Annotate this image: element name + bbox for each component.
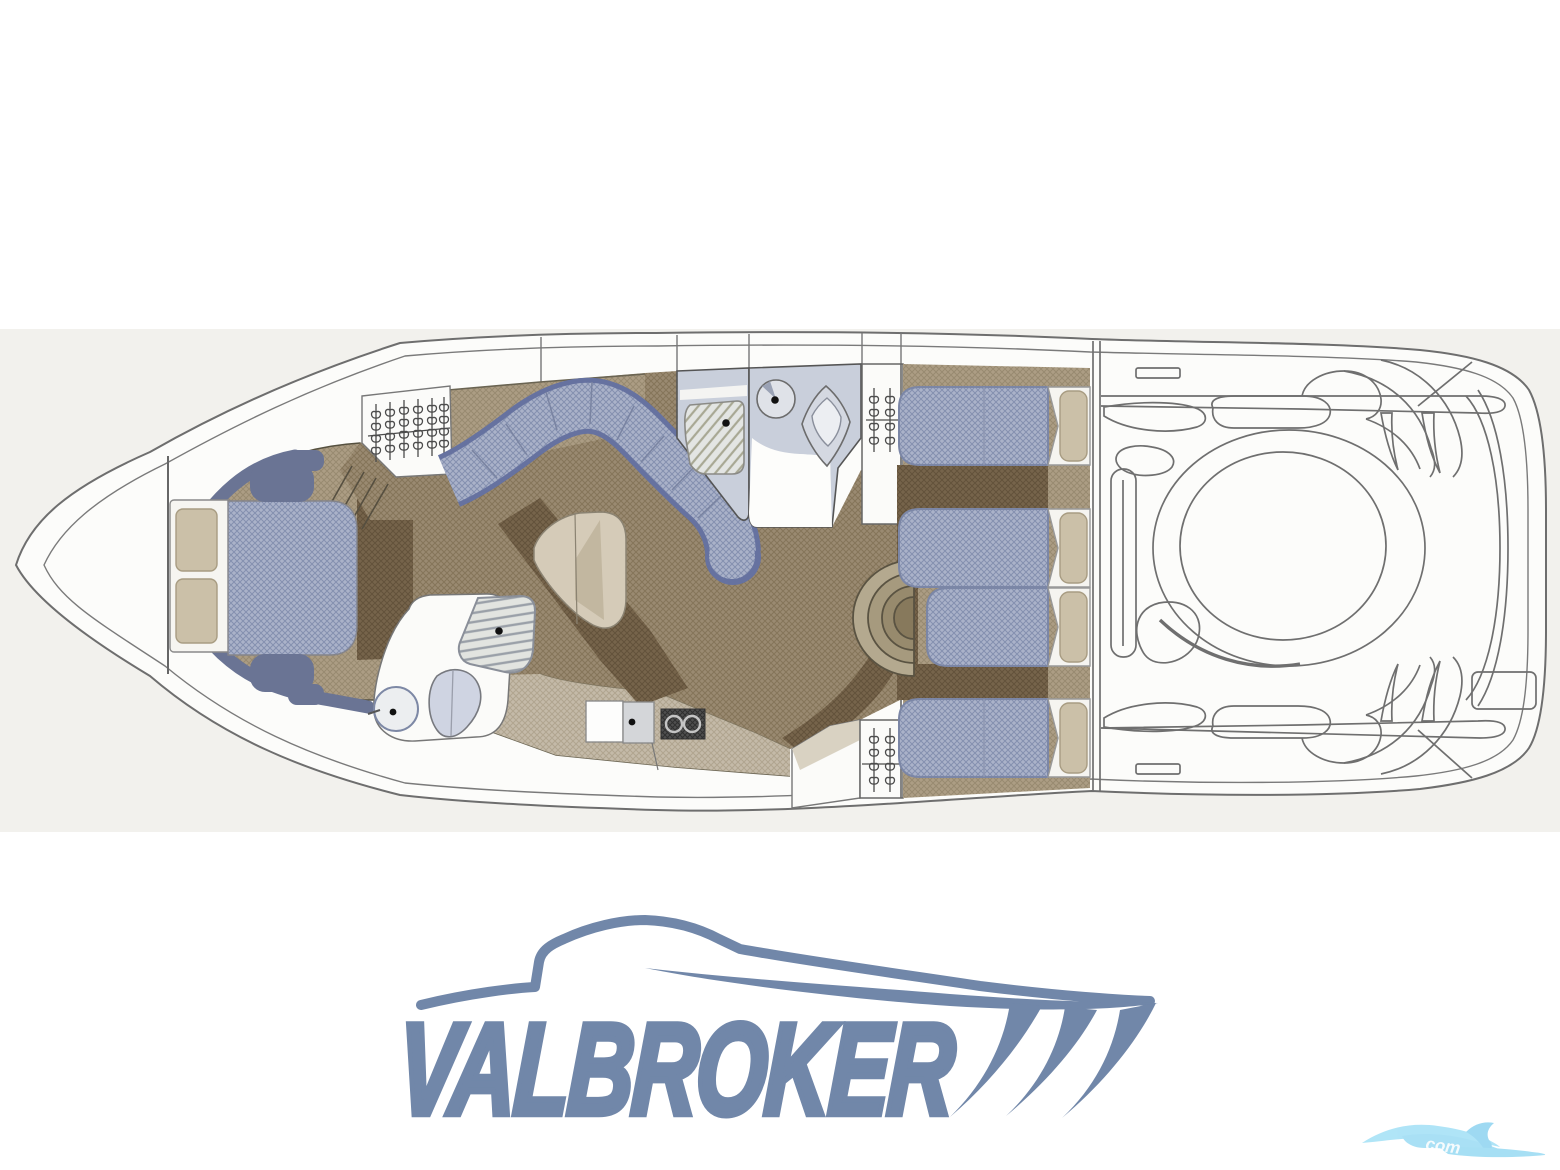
- svg-text:VALBROKER: VALBROKER: [395, 996, 959, 1142]
